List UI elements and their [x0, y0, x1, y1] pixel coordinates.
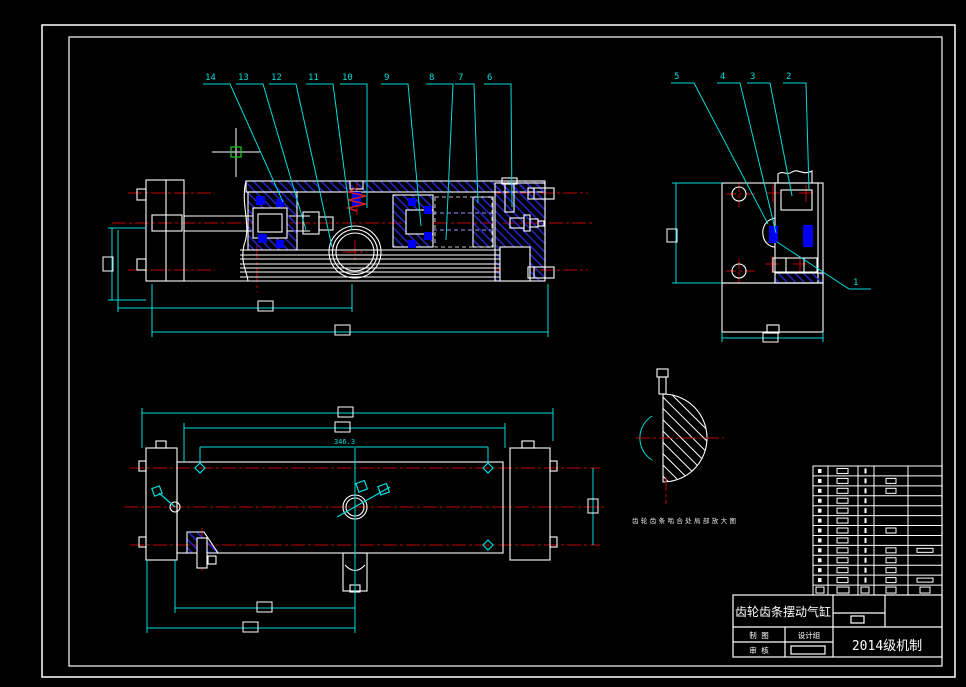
plan-view: 346.3	[124, 407, 606, 633]
callout-7: 7	[458, 73, 463, 83]
title-block-row2-left: 审 核	[749, 645, 769, 655]
front-callout-labels: 14 13 12 11 10 9 8 7 6	[205, 73, 492, 83]
dimension-346-3: 346.3	[334, 438, 355, 446]
detail-view: 齿轮齿条啮合处局部放大图	[632, 369, 736, 525]
detail-note: 齿轮齿条啮合处局部放大图	[632, 516, 736, 525]
cad-drawing-canvas[interactable]: 14 13 12 11 10 9 8 7 6	[0, 0, 966, 687]
side-view: 5 4 3 2 1	[667, 72, 871, 342]
front-section-view	[112, 178, 592, 292]
callout-2: 2	[786, 72, 791, 82]
title-block-row1-left: 制 图	[749, 630, 769, 640]
callout-5: 5	[674, 72, 679, 82]
callout-1: 1	[853, 278, 858, 288]
callout-13: 13	[238, 73, 249, 83]
callout-10: 10	[342, 73, 353, 83]
callout-6: 6	[487, 73, 492, 83]
title-block: 齿轮齿条摆动气缸 制 图 设计组 审 核 2014级机制	[733, 595, 942, 657]
callout-12: 12	[271, 73, 282, 83]
callout-3: 3	[750, 72, 755, 82]
side-seals	[769, 225, 813, 247]
callout-11: 11	[308, 73, 319, 83]
callout-9: 9	[384, 73, 389, 83]
title-block-row1-right: 设计组	[798, 630, 821, 640]
bom-table	[813, 466, 942, 595]
course-label: 2014级机制	[852, 639, 922, 654]
callout-4: 4	[720, 72, 725, 82]
callout-8: 8	[429, 73, 434, 83]
drawing-title: 齿轮齿条摆动气缸	[735, 604, 831, 619]
callout-14: 14	[205, 73, 216, 83]
side-callout-leaders	[671, 83, 871, 289]
detail-geometry	[657, 369, 707, 482]
